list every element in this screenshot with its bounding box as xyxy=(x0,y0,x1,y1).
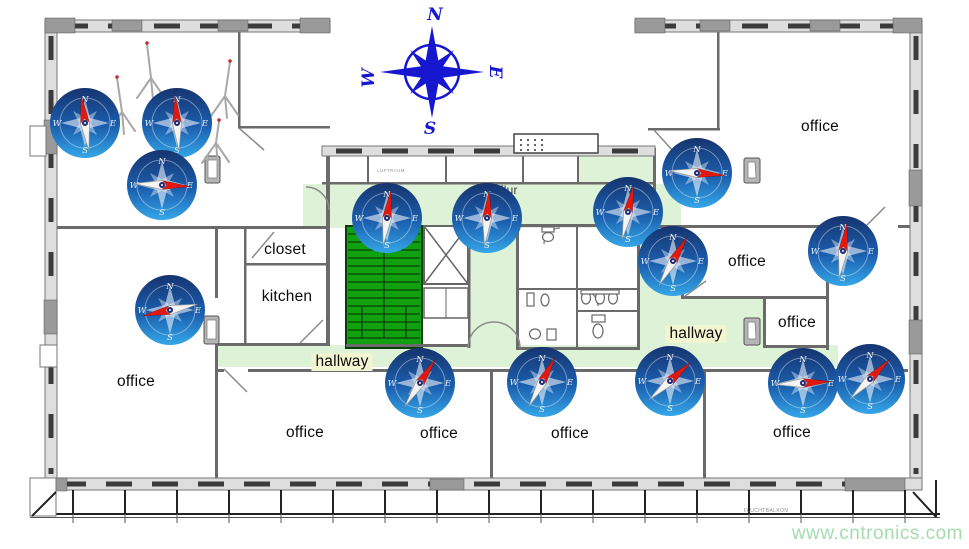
compass-icon: NSEW xyxy=(135,275,205,345)
compass-letter: S xyxy=(539,405,545,415)
compass-icon: NSEW xyxy=(50,88,120,158)
compass-icon: NSEW xyxy=(452,183,522,253)
compass-icon: NSEW xyxy=(385,348,455,418)
compass-letter: E xyxy=(721,169,729,179)
compass-letter: W xyxy=(641,257,651,267)
floor-plan-page: LUFTRAUMFLUCHTBALKON officeofficeofficeo… xyxy=(0,0,969,549)
compass-letter: E xyxy=(194,306,202,316)
compass-letter: E xyxy=(894,375,902,385)
compass-letter: S xyxy=(417,406,423,416)
compass-letter: S xyxy=(167,333,173,343)
compass-icon: NSEW xyxy=(768,348,838,418)
compass-letter: S xyxy=(159,208,165,218)
compass-icon: NSEW xyxy=(142,88,212,158)
compass-icon: NSEW xyxy=(835,344,905,414)
compass-letter: N xyxy=(165,282,174,292)
rose-letter: S xyxy=(424,119,436,139)
compass-letter: W xyxy=(638,377,648,387)
rose-letter: E xyxy=(485,65,505,80)
compass-letter: S xyxy=(670,284,676,294)
compass-letter: E xyxy=(444,379,452,389)
compass-letter: E xyxy=(201,119,209,129)
compass-letter: E xyxy=(411,214,419,224)
compass-letter: S xyxy=(82,146,88,156)
compass-letter: N xyxy=(537,354,546,364)
compass-icon: NSEW xyxy=(662,138,732,208)
compass-letter: S xyxy=(867,402,873,412)
compass-letter: W xyxy=(510,378,520,388)
compass-letter: N xyxy=(415,355,424,365)
compass-letter: E xyxy=(109,119,117,129)
compass-letter: W xyxy=(838,375,848,385)
compass-letter: E xyxy=(511,214,519,224)
rose-letter: N xyxy=(426,5,444,25)
compass-icon: NSEW xyxy=(635,346,705,416)
compass-letter: E xyxy=(867,247,875,257)
compass-letter: W xyxy=(145,119,155,129)
north-rose: NSWE xyxy=(359,5,505,139)
compass-icon: NSEW xyxy=(507,347,577,417)
compass-letter: E xyxy=(827,379,835,389)
compass-icon: NSEW xyxy=(638,226,708,296)
compass-letter: N xyxy=(865,351,874,361)
compass-letter: W xyxy=(596,208,606,218)
compass-icon: NSEW xyxy=(127,150,197,220)
compass-letter: W xyxy=(388,379,398,389)
compass-overlay: NSWE NSEWNSEWNSEWNSEWNSEWNSEWNSEWNSEWNSE… xyxy=(0,0,969,549)
watermark: www.cntronics.com xyxy=(792,523,963,545)
compass-letter: W xyxy=(53,119,63,129)
compass-letter: E xyxy=(694,377,702,387)
compass-icon: NSEW xyxy=(352,183,422,253)
compass-letter: W xyxy=(455,214,465,224)
compass-letter: E xyxy=(652,208,660,218)
compass-letter: W xyxy=(355,214,365,224)
compass-letter: N xyxy=(668,233,677,243)
rose-letter: W xyxy=(359,67,379,88)
compass-letter: N xyxy=(692,145,701,155)
compass-icon: NSEW xyxy=(808,216,878,286)
compass-letter: S xyxy=(667,404,673,414)
compass-letter: E xyxy=(566,378,574,388)
compass-letter: W xyxy=(811,247,821,257)
compass-letter: N xyxy=(665,353,674,363)
compass-letter: N xyxy=(157,157,166,167)
compass-letter: N xyxy=(798,355,807,365)
compass-letter: S xyxy=(625,235,631,245)
compass-letter: S xyxy=(840,274,846,284)
compass-letter: S xyxy=(694,196,700,206)
compass-letter: S xyxy=(800,406,806,416)
compass-letter: W xyxy=(130,181,140,191)
compass-letter: S xyxy=(384,241,390,251)
compass-letter: E xyxy=(697,257,705,267)
